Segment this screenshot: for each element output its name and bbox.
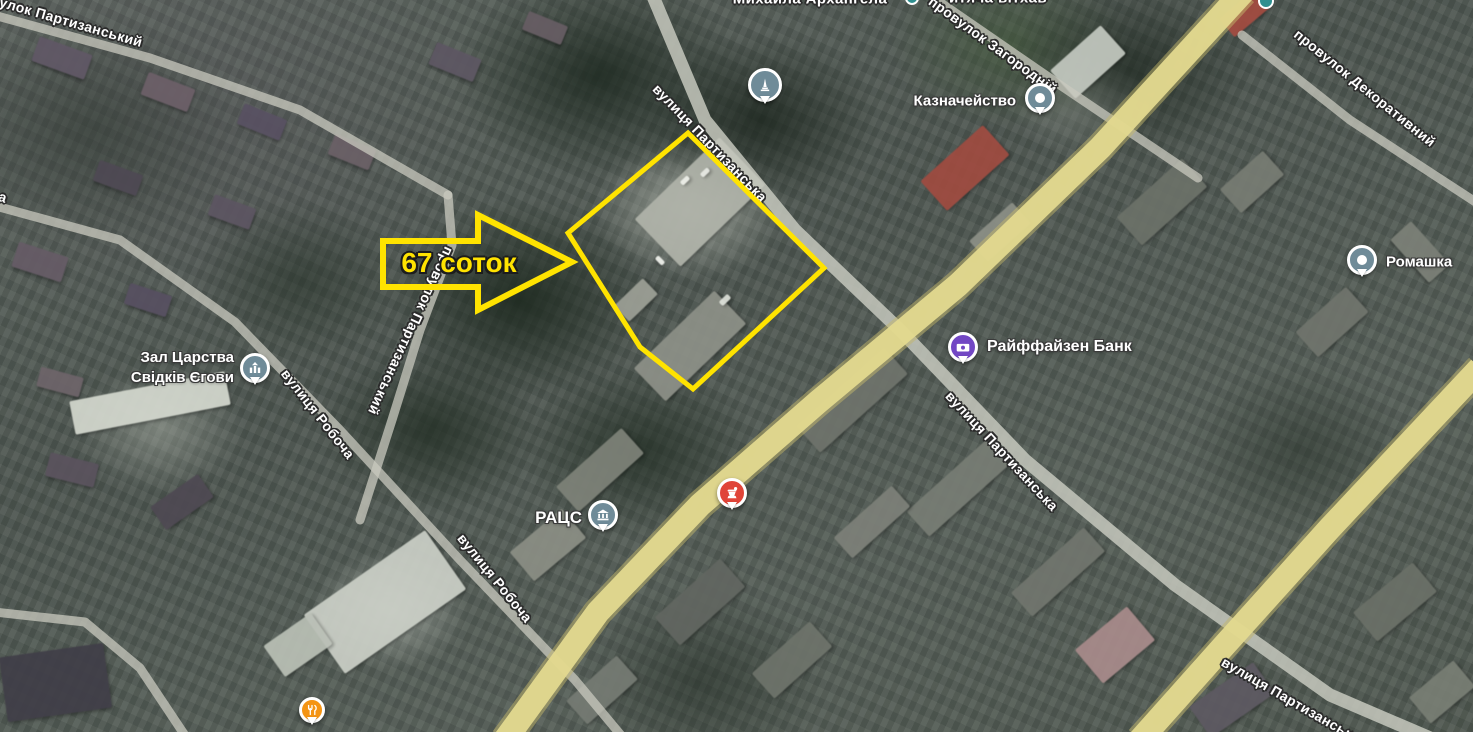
kingdom-hall-label[interactable]: Зал Царства Свідків Єгови bbox=[131, 348, 234, 388]
ratss-label[interactable]: РАЦС bbox=[535, 508, 582, 528]
banknote-icon bbox=[954, 338, 972, 356]
ratss-pin[interactable] bbox=[588, 500, 618, 530]
raiffeisen-bank-pin[interactable] bbox=[948, 332, 978, 362]
fork-knife-icon bbox=[305, 703, 319, 717]
monument-icon bbox=[756, 76, 774, 94]
road-dekoratyvnyi bbox=[1242, 35, 1473, 205]
romashka-label[interactable]: Ромашка bbox=[1386, 254, 1452, 271]
treasury-label[interactable]: Казначейство bbox=[914, 93, 1017, 110]
plot-size-label: 67 соток bbox=[401, 247, 516, 279]
kingdom-hall-pin[interactable] bbox=[240, 353, 270, 383]
main-yellow-road bbox=[505, 0, 1243, 732]
poi-dot-icon bbox=[1035, 93, 1045, 103]
road-top-left-lane bbox=[0, 14, 448, 195]
road-bottom-left bbox=[0, 612, 188, 732]
pharmacy-pin[interactable] bbox=[717, 478, 747, 508]
kingdom-hall-label-line2: Свідків Єгови bbox=[131, 368, 234, 388]
street-label-church-top: Михайла Архангела bbox=[733, 0, 887, 8]
restaurant-pin[interactable] bbox=[299, 697, 325, 723]
road-robocha bbox=[0, 205, 625, 732]
church-building-icon bbox=[247, 360, 263, 376]
street-label-top-cut-fragment: итяча вітхав bbox=[949, 0, 1047, 7]
monument-pin[interactable] bbox=[748, 68, 782, 102]
government-building-icon bbox=[595, 507, 611, 523]
raiffeisen-bank-label[interactable]: Райффайзен Банк bbox=[987, 338, 1132, 356]
treasury-pin[interactable] bbox=[1025, 83, 1055, 113]
kingdom-hall-label-line1: Зал Царства bbox=[131, 348, 234, 368]
romashka-pin[interactable] bbox=[1347, 245, 1377, 275]
satellite-map[interactable]: провулок Партизанський Михайла Архангела… bbox=[0, 0, 1473, 732]
mortar-pestle-icon bbox=[724, 485, 740, 501]
poi-dot-icon bbox=[1357, 255, 1367, 265]
